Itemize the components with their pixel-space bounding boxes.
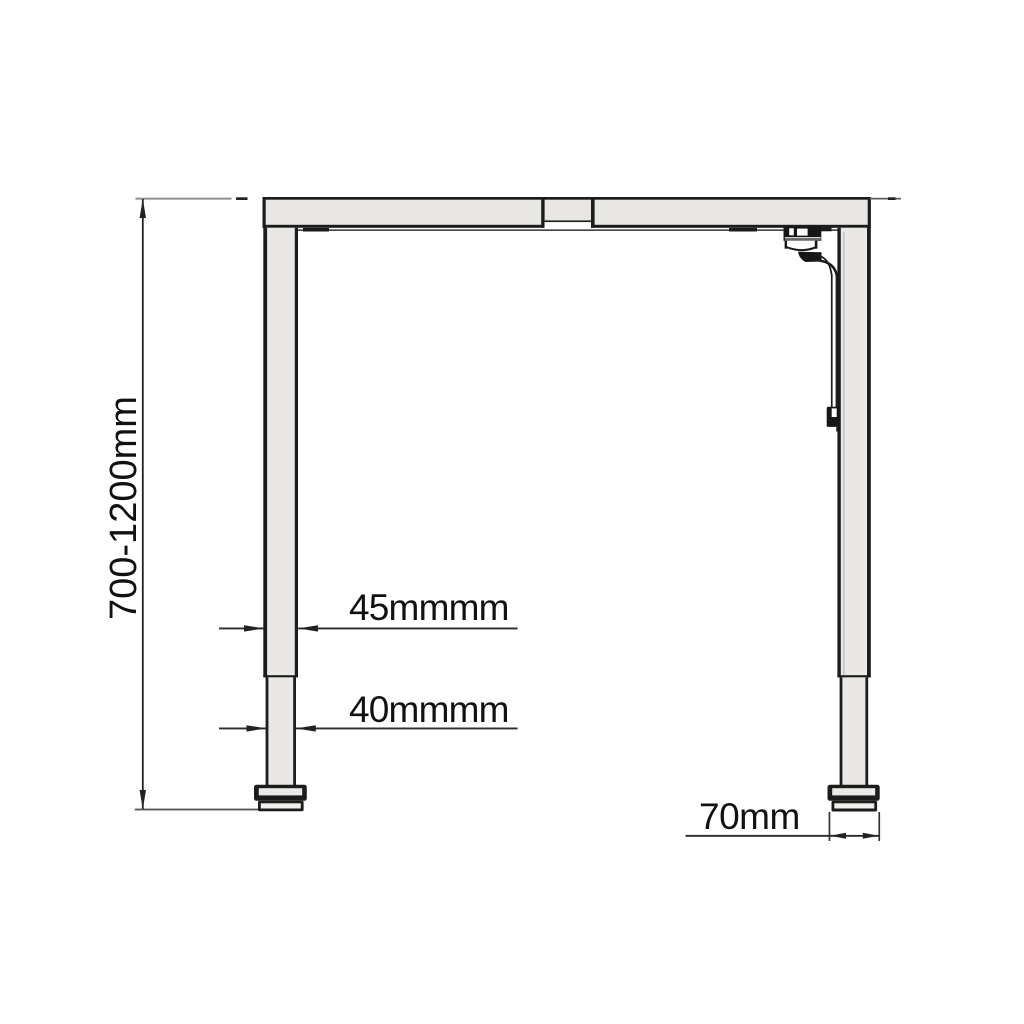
svg-text:40mmmm: 40mmmm <box>349 689 509 730</box>
svg-text:45mmmm: 45mmmm <box>349 587 509 628</box>
svg-text:700-1200mm: 700-1200mm <box>103 396 145 620</box>
svg-text:70mm: 70mm <box>699 796 800 837</box>
